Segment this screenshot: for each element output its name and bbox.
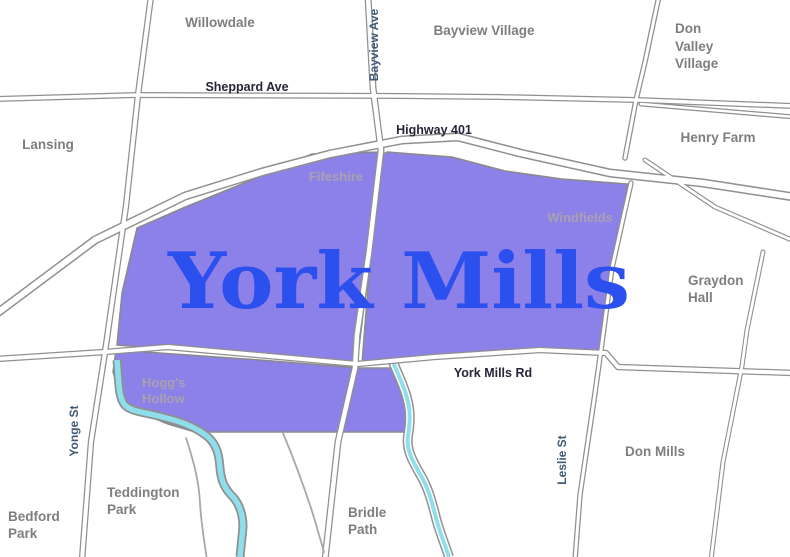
label-graydon-hall-line1: Graydon (688, 273, 744, 288)
label-henry-farm: Henry Farm (680, 130, 755, 145)
label-sheppard-ave: Sheppard Ave (205, 80, 288, 94)
label-bedford-park-line2: Park (8, 526, 38, 541)
label-fifeshire: Fifeshire (309, 169, 363, 184)
label-don-mills: Don Mills (625, 444, 685, 459)
label-leslie-st: Leslie St (555, 435, 569, 484)
label-lansing: Lansing (22, 137, 74, 152)
label-york-mills-rd: York Mills Rd (454, 366, 532, 380)
york-mills-locator-map: Willowdale Bayview Village Don Valley Vi… (0, 0, 790, 557)
label-bayview-village: Bayview Village (433, 23, 535, 38)
label-willowdale: Willowdale (185, 15, 255, 30)
label-hoggs-hollow-line2: Hollow (142, 391, 185, 406)
label-graydon-hall-line2: Hall (688, 290, 713, 305)
label-bayview-ave: Bayview Ave (367, 8, 381, 81)
label-don-valley-village-line3: Village (675, 56, 719, 71)
label-teddington-park-line1: Teddington (107, 485, 179, 500)
label-teddington-park-line2: Park (107, 502, 137, 517)
label-highway-401: Highway 401 (396, 123, 472, 137)
label-don-valley-village-line1: Don (675, 21, 701, 36)
label-yonge-st: Yonge St (67, 405, 81, 456)
label-york-mills-title: York Mills (167, 236, 630, 327)
label-don-valley-village-line2: Valley (675, 39, 714, 54)
label-bedford-park-line1: Bedford (8, 509, 60, 524)
label-bridle-path-line1: Bridle (348, 505, 387, 520)
map-canvas: Willowdale Bayview Village Don Valley Vi… (0, 0, 790, 557)
label-windfields: Windfields (547, 210, 613, 225)
label-bridle-path-line2: Path (348, 522, 377, 537)
label-hoggs-hollow-line1: Hogg's (142, 375, 186, 390)
